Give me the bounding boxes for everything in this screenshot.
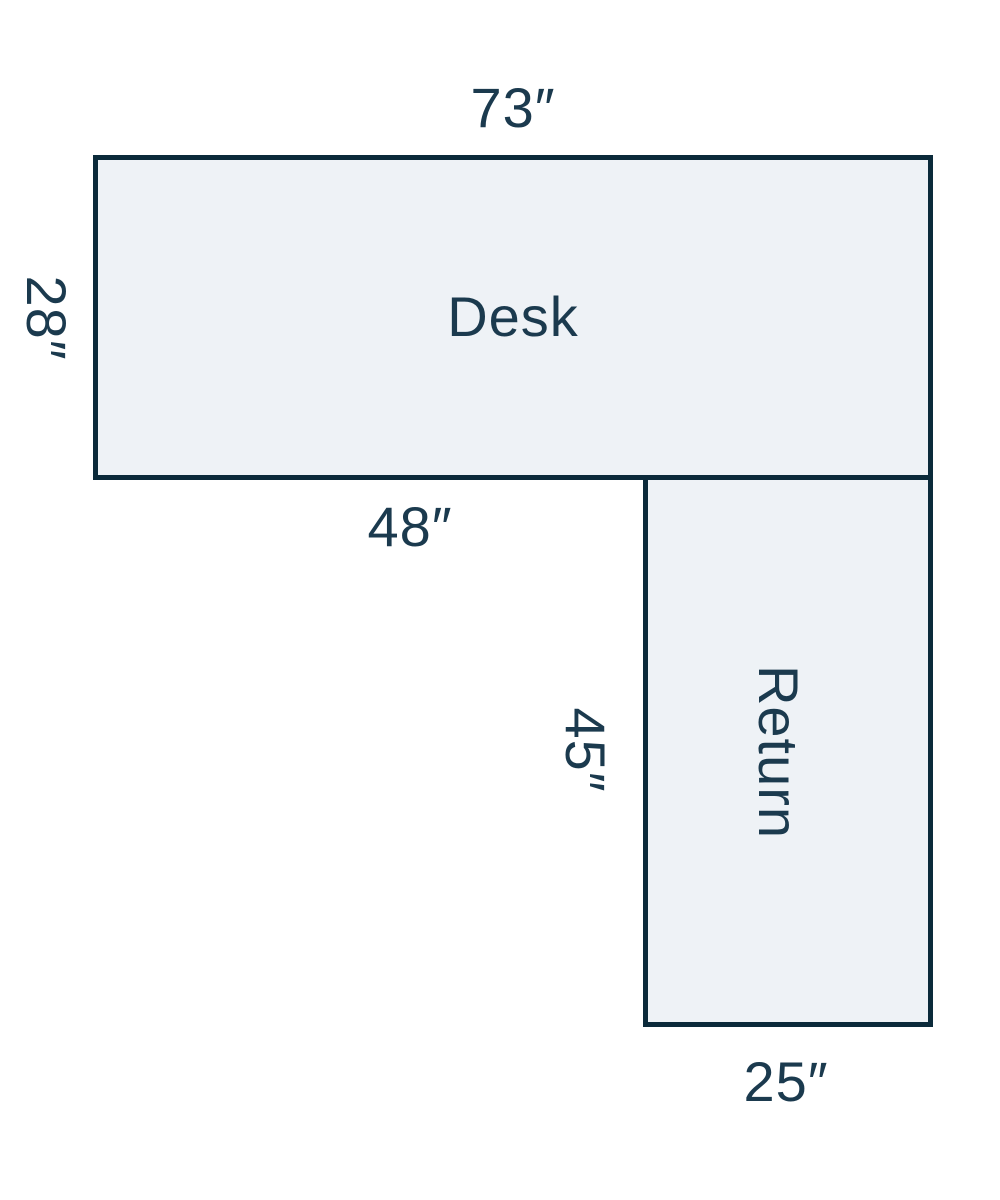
desk-top-dimension: 73″ [470, 80, 555, 136]
return-bottom-dimension: 25″ [743, 1054, 828, 1110]
return-left-dimension: 45″ [557, 707, 613, 792]
desk-bottom-dimension: 48″ [367, 499, 452, 555]
floor-plan-diagram: 73″ 28″ Desk 48″ 45″ Return 25″ [0, 0, 1000, 1200]
desk-left-dimension: 28″ [18, 275, 74, 360]
return-label: Return [750, 665, 806, 839]
desk-label: Desk [447, 289, 579, 345]
